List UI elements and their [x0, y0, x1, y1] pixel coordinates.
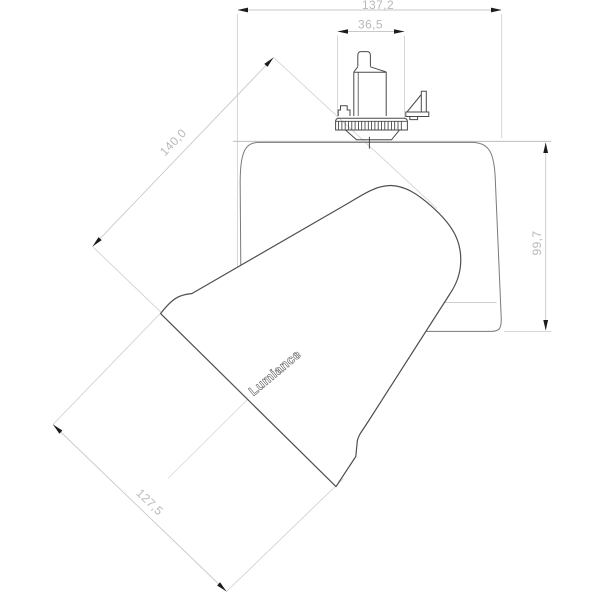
- dimline-head-diameter: [53, 425, 227, 592]
- arrow-overall-width-left: [238, 8, 249, 13]
- adapter-body: [354, 72, 386, 116]
- ext-length-top: [274, 58, 438, 209]
- arrow-adapter-left: [338, 29, 349, 34]
- ext-diameter-top: [53, 306, 168, 425]
- dim-adapter-width-text: 36,5: [358, 18, 383, 32]
- ext-diameter-bottom: [227, 479, 344, 592]
- technical-drawing-page: Lumiance 137,2 36,5 99,7 140,0 127,5: [0, 0, 600, 600]
- dim-housing-height-text: 99,7: [530, 231, 544, 256]
- arrow-adapter-right: [394, 29, 405, 34]
- dim-head-diameter-text: 127,5: [133, 486, 166, 518]
- adapter-knob: [358, 52, 371, 67]
- dim-overall-width-text: 137,2: [362, 0, 394, 12]
- arrow-housing-bottom: [543, 320, 548, 331]
- adapter-gear-teeth: [339, 122, 402, 130]
- track-adapter: [336, 52, 429, 149]
- dimline-overall-length: [93, 58, 274, 247]
- dim-overall-length-text: 140,0: [157, 126, 189, 159]
- arrow-overall-width-right: [491, 8, 502, 13]
- adapter-shoulder: [354, 67, 386, 72]
- technical-drawing-canvas: Lumiance 137,2 36,5 99,7 140,0 127,5: [0, 0, 600, 600]
- adapter-latch-block: [338, 106, 350, 116]
- arrow-housing-top: [543, 143, 548, 154]
- adapter-bracket: [406, 91, 429, 119]
